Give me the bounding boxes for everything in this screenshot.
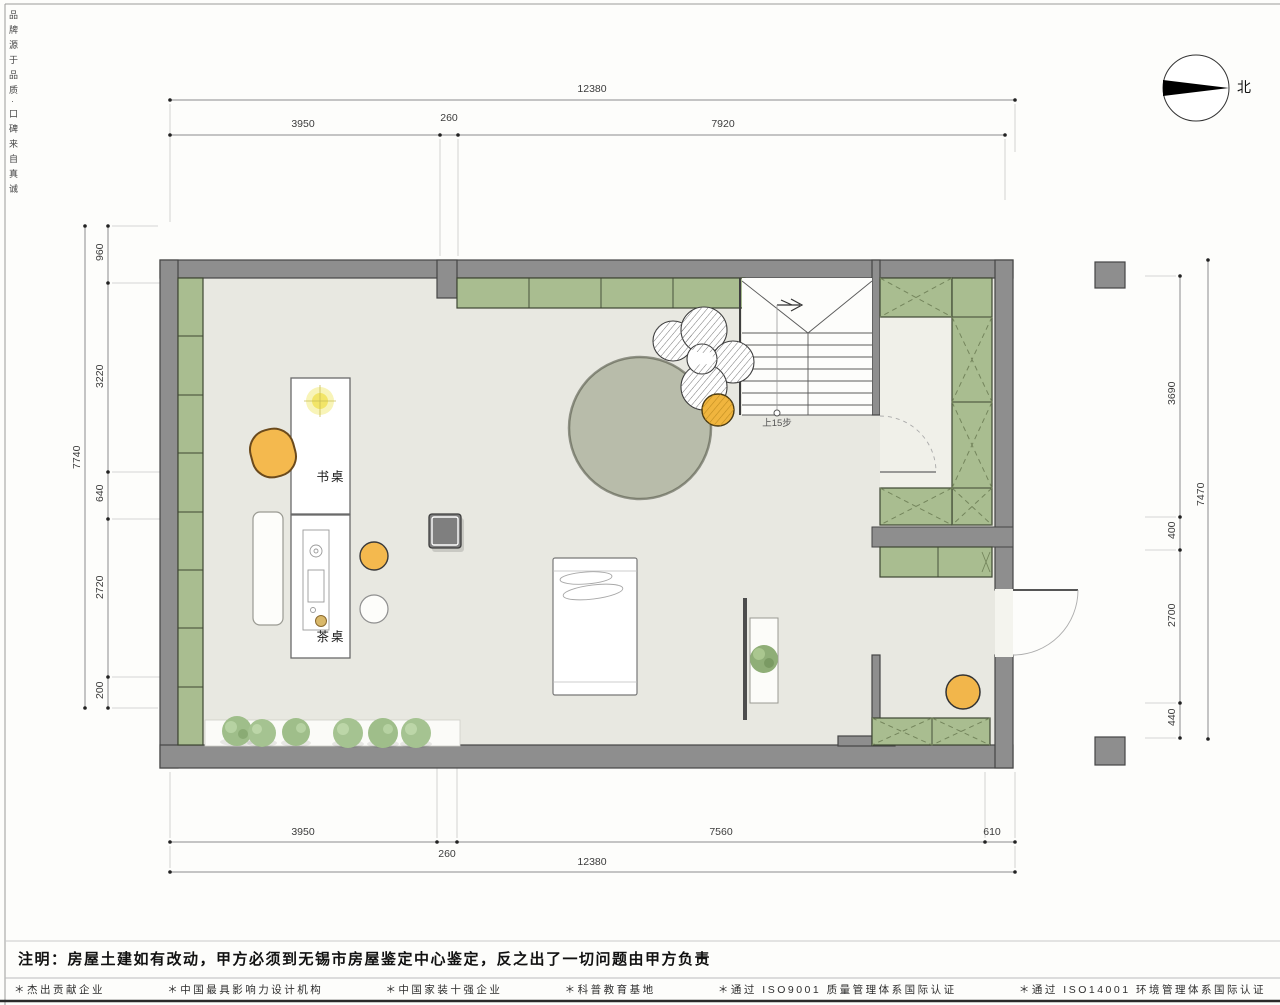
- footer-item: ＊通过 ISO9001 质量管理体系国际认证: [718, 982, 957, 997]
- bottom-right-cabinets: [872, 718, 990, 745]
- dim-top-seg: 260: [429, 113, 469, 124]
- dim-left-seg: 3220: [95, 354, 106, 398]
- dim-left-seg: 960: [95, 230, 106, 274]
- footer-item: ＊中国最具影响力设计机构: [167, 982, 323, 997]
- plant-stand: [750, 618, 778, 703]
- footer-item: ＊通过 ISO14001 环境管理体系国际认证: [1019, 982, 1266, 997]
- dim-right-seg: 3690: [1167, 371, 1178, 415]
- dim-right-seg: 2700: [1167, 593, 1178, 637]
- stair-side-wall: [872, 260, 880, 415]
- dim-top-seg: 7920: [683, 119, 763, 130]
- label-desk: 书桌: [303, 471, 359, 484]
- tea-kettle: [316, 616, 327, 627]
- footer-item: ＊杰出贡献企业: [14, 982, 105, 997]
- desk: [291, 378, 350, 514]
- dim-bottom-seg: 610: [962, 827, 1022, 838]
- stool-orange: [360, 542, 388, 570]
- footer-credentials: ＊杰出贡献企业 ＊中国最具影响力设计机构 ＊中国家装十强企业 ＊科普教育基地 ＊…: [14, 982, 1266, 997]
- label-stairs-up: 上15步: [750, 419, 804, 429]
- label-tea-table: 茶桌: [303, 631, 359, 644]
- staircase: [740, 278, 872, 416]
- dim-right-seg: 400: [1167, 508, 1178, 552]
- dim-bottom-seg: 3950: [263, 827, 343, 838]
- dim-right-overall: 7470: [1196, 472, 1207, 516]
- wall-pier: [437, 260, 457, 298]
- stool-orange-entry: [946, 675, 980, 709]
- dim-bottom-seg: 7560: [681, 827, 761, 838]
- side-table: [429, 514, 464, 552]
- dim-top-overall: 12380: [552, 84, 632, 95]
- cabinet-left-strip: [178, 278, 203, 745]
- dim-left-seg: 640: [95, 471, 106, 515]
- disclaimer-note: 注明：房屋土建如有改动，甲方必须到无锡市房屋鉴定中心鉴定，反之出了一切问题由甲方…: [18, 948, 711, 969]
- dim-bottom-seg: 260: [417, 849, 477, 860]
- outer-column-top: [1095, 262, 1125, 288]
- bed: [553, 558, 637, 695]
- entry-door: [995, 589, 1078, 657]
- drawing-sheet: 品牌源于品质·口碑来自真诚 北 12380 3950 260 7920 3950…: [0, 0, 1280, 1005]
- floor-plan-svg: [0, 0, 1280, 1005]
- footer-item: ＊科普教育基地: [565, 982, 656, 997]
- pouf-yellow: [702, 394, 734, 426]
- closet: [880, 278, 992, 525]
- dim-left-overall: 7740: [72, 435, 83, 479]
- floor-plan: [160, 260, 1125, 768]
- outer-column-bottom: [1095, 737, 1125, 765]
- bench: [253, 512, 283, 625]
- compass-icon: [1163, 55, 1229, 121]
- dim-top-seg: 3950: [263, 119, 343, 130]
- dim-left-seg: 200: [95, 668, 106, 712]
- dim-right-seg: 440: [1167, 695, 1178, 739]
- dim-bottom-overall: 12380: [552, 857, 632, 868]
- footer-item: ＊中国家装十强企业: [385, 982, 502, 997]
- dim-left-seg: 2720: [95, 565, 106, 609]
- lower-cabinet-band: [872, 527, 1013, 577]
- partition-bed: [743, 598, 747, 720]
- stool-white: [360, 595, 388, 623]
- compass-north-label: 北: [1237, 80, 1251, 94]
- side-slogan: 品牌源于品质·口碑来自真诚: [8, 10, 17, 199]
